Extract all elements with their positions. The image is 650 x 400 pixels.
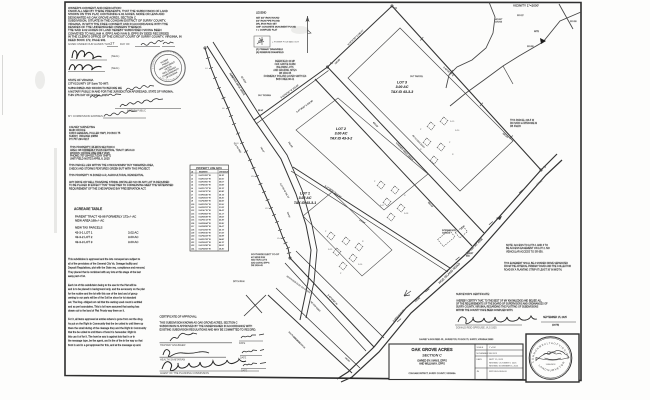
- svg-text:S 44°05'38" W: S 44°05'38" W: [199, 217, 211, 219]
- svg-text:DB 2004-55: DB 2004-55: [279, 73, 292, 75]
- svg-text:DISTANCE: DISTANCE: [219, 170, 229, 173]
- svg-text:S 40°19'55" W: S 40°19'55" W: [199, 182, 211, 184]
- svg-text:30.18': 30.18': [219, 175, 225, 177]
- svg-text:LOT 2: LOT 2: [336, 127, 346, 131]
- svg-text:S 43°55'41" W: S 43°55'41" W: [199, 242, 211, 244]
- svg-text:36.25': 36.25': [219, 198, 225, 200]
- svg-text:38.07': 38.07': [219, 182, 225, 184]
- svg-text:GUY ROWAN: GUY ROWAN: [258, 94, 271, 97]
- svg-text:40.73': 40.73': [219, 229, 225, 231]
- svg-text:OAK GROVE FARM: OAK GROVE FARM: [275, 63, 296, 66]
- svg-text:SEPTEMBER 15, 2025: SEPTEMBER 15, 2025: [543, 317, 567, 319]
- svg-text:Each lot of this subdivision b: Each lot of this subdivision being to th…: [68, 284, 137, 287]
- svg-text:L14: L14: [191, 217, 194, 219]
- svg-text:S 44°28'31" W: S 44°28'31" W: [199, 198, 211, 200]
- svg-text:S 39°58'15" W: S 39°58'15" W: [199, 232, 211, 234]
- svg-text:Deposit Regulations, plot with: Deposit Regulations, plot with the State…: [68, 267, 145, 270]
- svg-text:L4: L4: [191, 185, 193, 187]
- svg-text:35.17': 35.17': [219, 213, 225, 215]
- svg-text:OAK GROVE ACRES: OAK GROVE ACRES: [411, 347, 452, 352]
- svg-text:37.58': 37.58': [219, 232, 225, 234]
- svg-text:REVISED NOVEMBER 3, 2025: REVISED NOVEMBER 3, 2025: [489, 366, 519, 368]
- svg-text:GARAGE: GARAGE: [442, 231, 451, 234]
- svg-text:WITHIN THE COUNTY HAVE BEEN CO: WITHIN THE COUNTY HAVE BEEN COMPLIED WIT…: [456, 309, 513, 312]
- svg-text:DB 2024-45: DB 2024-45: [251, 265, 263, 267]
- svg-text:OF THE REQUIREMENTS OF THE BOA: OF THE REQUIREMENTS OF THE BOARD OF SUPE…: [456, 303, 548, 306]
- svg-text:3.02 AC: 3.02 AC: [299, 196, 312, 200]
- svg-text:24.89': 24.89': [219, 236, 225, 238]
- svg-text:S 40°36'44" W: S 40°36'44" W: [199, 223, 211, 225]
- svg-text:DITCH RUN: DITCH RUN: [233, 281, 245, 283]
- svg-text:S 42°40'08" W: S 42°40'08" W: [199, 201, 211, 203]
- svg-text:SCALE: SCALE: [477, 346, 484, 349]
- svg-text:EXISTING SUBDIVISION REGULATIO: EXISTING SUBDIVISION REGULATIONS AND MAY…: [160, 328, 257, 332]
- svg-text:CMF: CONCRETE MONUMENT FOUND: CMF: CONCRETE MONUMENT FOUND: [256, 27, 296, 29]
- svg-text:REQUIREMENT OF THE CHESAPEAKE: REQUIREMENT OF THE CHESAPEAKE BAY PRESER…: [69, 187, 147, 190]
- svg-text:L6: L6: [191, 191, 193, 193]
- svg-text:L23: L23: [191, 245, 194, 247]
- svg-text:SUBSCRIBED AND SWORN TO BEFORE: SUBSCRIBED AND SWORN TO BEFORE ME: [68, 86, 122, 90]
- svg-text:RICHARD & WINSOME M: RICHARD & WINSOME M: [510, 122, 537, 125]
- svg-text:This subdivision is approved a: This subdivision is approved and the lot…: [68, 258, 141, 261]
- svg-text:PROPERTY LINE DATA: PROPERTY LINE DATA: [196, 167, 222, 170]
- svg-text:AND GRAZING SITES: AND GRAZING SITES: [273, 69, 297, 72]
- svg-text:AND AGRIC EPPS: AND AGRIC EPPS: [251, 261, 270, 264]
- svg-text:3/4" IRON PIPE FOUND: 3/4" IRON PIPE FOUND: [256, 21, 280, 23]
- svg-text:NOVEMBER: NOVEMBER: [477, 353, 489, 355]
- svg-text:CHECK AND STORMS FEATURES GREE: CHECK AND STORMS FEATURES GREEN BUT WITH…: [69, 167, 151, 170]
- svg-text:41.90': 41.90': [219, 191, 225, 193]
- svg-text:S 39°28'02" W: S 39°28'02" W: [199, 213, 211, 215]
- svg-text:DEERFIELD 40 MP: DEERFIELD 40 MP: [275, 61, 296, 63]
- svg-text:L24: L24: [191, 248, 194, 250]
- svg-text:REVISED OCTOBER 9, 2025: REVISED OCTOBER 9, 2025: [489, 363, 517, 365]
- svg-text:CITY/COUNTY OF Surr: CITY/COUNTY OF Surry TO-WIT:: [68, 81, 109, 85]
- svg-text:LOT 3: LOT 3: [397, 81, 407, 85]
- svg-text:L19: L19: [191, 232, 194, 234]
- svg-text:S 44°10'12" W: S 44°10'12" W: [199, 178, 211, 180]
- svg-text:DATE: DATE: [241, 370, 248, 373]
- svg-text:SEPT 15, 2025: SEPT 15, 2025: [489, 359, 504, 361]
- svg-text:S 41°02'11" W: S 41°02'11" W: [199, 191, 211, 193]
- svg-text:LOT 1: LOT 1: [300, 192, 310, 196]
- svg-text:front in and in a get approved: front in and in a get approved for this,…: [68, 344, 141, 347]
- svg-text:● = COMPILED PLAT: ● = COMPILED PLAT: [256, 29, 278, 32]
- svg-text:DATE: DATE: [477, 358, 483, 361]
- svg-text:TAX ID 43-3-3: TAX ID 43-3-3: [391, 90, 413, 94]
- svg-text:1"=200': 1"=200': [489, 347, 497, 349]
- svg-text:SITE: SITE: [534, 31, 539, 33]
- svg-text:AGENT OF THE PLANNING COMMISSI: AGENT OF THE PLANNING COMMISSION: [160, 372, 209, 375]
- svg-text:L2: L2: [191, 178, 193, 180]
- svg-text:drawn out to the land of Plat: drawn out to the land of Plat Prunty way…: [68, 310, 125, 313]
- svg-text:L22: L22: [191, 242, 194, 244]
- svg-text:L20: L20: [191, 236, 194, 238]
- svg-text:SB 2025: SB 2025: [489, 353, 498, 355]
- svg-text:30.91': 30.91': [219, 245, 225, 247]
- svg-text:BED: BED: [466, 255, 471, 257]
- svg-text:L18: L18: [191, 229, 194, 231]
- svg-text:L17: L17: [191, 226, 194, 228]
- svg-text:and is to be placed in backgro: and is to be placed in background only, …: [68, 288, 145, 291]
- svg-text:28.35': 28.35': [219, 248, 225, 250]
- svg-text:THIS 17th DAY OF Octobe: THIS 17th DAY OF October , 2025.: [68, 93, 109, 97]
- svg-text:(SEAL): (SEAL): [111, 66, 119, 70]
- svg-text:L1: L1: [191, 175, 193, 177]
- svg-text:3.02 AC: 3.02 AC: [128, 230, 139, 234]
- svg-text:BALDWIN LOTS: BALDWIN LOTS: [276, 66, 294, 69]
- svg-text:(P) PRIMARY DRAINFIELD: (P) PRIMARY DRAINFIELD: [256, 48, 283, 51]
- svg-text:THIS PROPERTY IS ZONED A-R, AG: THIS PROPERTY IS ZONED A-R, AGRICULTURAL…: [69, 174, 144, 177]
- svg-text:As put on the Right in Communi: As put on the Right in Community that th…: [68, 323, 144, 326]
- svg-text:S 39°55'45" W: S 39°55'45" W: [199, 194, 211, 196]
- svg-text:S 40°27'09" W: S 40°27'09" W: [199, 239, 211, 241]
- svg-text:away part of lot.: away part of lot.: [68, 275, 86, 278]
- svg-text:42.55': 42.55': [219, 178, 225, 180]
- svg-text:CROSS: CROSS: [495, 21, 503, 23]
- svg-text:44.08': 44.08': [219, 201, 225, 203]
- svg-text:27.83': 27.83': [219, 207, 225, 209]
- svg-text:34.66': 34.66': [219, 239, 225, 241]
- svg-text:SR 617: SR 617: [517, 15, 525, 17]
- svg-text:DATE: DATE: [239, 342, 246, 345]
- svg-text:SR 650: SR 650: [527, 46, 535, 48]
- svg-text:THIS PARCEL 226.5 W: THIS PARCEL 226.5 W: [510, 119, 535, 122]
- svg-text:A NOTARY PUBLIC IN AND FOR THE: A NOTARY PUBLIC IN AND FOR THE JURISDICT…: [68, 90, 174, 94]
- svg-text:31.55': 31.55': [219, 204, 225, 206]
- svg-text:MY COMMISSION EXPIRES:: MY COMMISSION EXPIRES:: [68, 114, 104, 118]
- svg-text:CERTIFICATE OF APPROVAL:: CERTIFICATE OF APPROVAL:: [160, 315, 198, 319]
- svg-text:L5: L5: [191, 188, 193, 190]
- svg-text:GIVEN UNDER OUR HANDS THIS: GIVEN UNDER OUR HANDS THIS: [68, 42, 111, 46]
- svg-text:28.74': 28.74': [219, 194, 225, 196]
- svg-text:S 43°17'22" W: S 43°17'22" W: [199, 188, 211, 190]
- svg-text:set. The Reg. obliged not call: set. The Reg. obliged not call that the …: [68, 301, 143, 304]
- svg-text:L12: L12: [191, 210, 194, 212]
- svg-text:L9: L9: [191, 201, 193, 203]
- svg-text:3.00 AC: 3.00 AC: [396, 85, 409, 89]
- svg-text:SR 650: SR 650: [570, 21, 578, 23]
- svg-text:3.00 AC: 3.00 AC: [335, 132, 348, 136]
- svg-text:L21: L21: [191, 239, 194, 241]
- svg-text:43-3-1 LOT 1: 43-3-1 LOT 1: [75, 230, 93, 234]
- svg-text:S 41°47'15" W: S 41°47'15" W: [199, 210, 211, 212]
- svg-text:For it, all items approved at: For it, all items approved at entries wh…: [68, 318, 143, 321]
- svg-text:S 40°12'55" W: S 40°12'55" W: [199, 204, 211, 206]
- svg-text:43-3-2 LOT 2: 43-3-2 LOT 2: [75, 235, 93, 239]
- svg-text:STATE OF VIRGINIA: STATE OF VIRGINIA: [68, 78, 93, 82]
- svg-text:39.41': 39.41': [219, 210, 225, 212]
- svg-text:L10: L10: [191, 204, 194, 206]
- svg-text:L3: L3: [191, 182, 193, 184]
- svg-text:3.00 AC: 3.00 AC: [128, 240, 139, 244]
- svg-text:SOUTHSIDE ELECT CO-OP: SOUTHSIDE ELECT CO-OP: [251, 254, 280, 256]
- svg-text:43-3-3 LOT 3: 43-3-3 LOT 3: [75, 240, 93, 244]
- svg-text:(DATE): (DATE): [552, 324, 559, 327]
- svg-text:and as per boundaries. This is: and as per boundaries. This is lot have …: [68, 305, 140, 308]
- svg-text:PH 757-294-5217: PH 757-294-5217: [69, 137, 90, 141]
- svg-text:FROM THE ARTERIAL PRIMARY ROAD: FROM THE ARTERIAL PRIMARY ROAD AND THE C…: [504, 265, 571, 268]
- svg-text:AND WILLIAM H. EPPS: AND WILLIAM H. EPPS: [419, 363, 445, 366]
- svg-text:VEHICULAR ACCESS TO SR 650.: VEHICULAR ACCESS TO SR 650.: [506, 250, 544, 253]
- svg-text:SURVEYOR'S CERTIFICATE:: SURVEYOR'S CERTIFICATE:: [456, 293, 490, 296]
- svg-text:COHOAM DISTRICT, SURRY COUNTY,: COHOAM DISTRICT, SURRY COUNTY, VIRGINIA: [409, 372, 457, 375]
- svg-text:L8: L8: [191, 198, 193, 200]
- svg-text:They placed that is combined w: They placed that is combined with any lo…: [68, 271, 141, 274]
- svg-text:L13: L13: [191, 213, 194, 215]
- svg-text:UNIT FIELD NOTES APRIL 8, 2025: UNIT FIELD NOTES APRIL 8, 2025: [70, 158, 110, 161]
- svg-text:S 42°51'12" W: S 42°51'12" W: [199, 220, 211, 222]
- svg-text:SECTION LOTS: SECTION LOTS: [251, 260, 268, 262]
- svg-text:HEALTH SANITARIAN: HEALTH SANITARIAN: [160, 358, 185, 361]
- svg-text:ROAD BY A PLANTING STRIP AT LE: ROAD BY A PLANTING STRIP AT LEAST 30' IN…: [504, 268, 563, 271]
- svg-text:L15: L15: [191, 220, 194, 222]
- svg-text:LEGEND: LEGEND: [256, 12, 266, 15]
- svg-text:FORMERLY POLAND LOVER SMITH ES: FORMERLY POLAND LOVER SMITH ES: [264, 75, 307, 78]
- svg-text:DEED BOOK 172, PAGE 302.: DEED BOOK 172, PAGE 302.: [68, 38, 106, 42]
- svg-text:OUT PARCEL: OUT PARCEL: [410, 75, 424, 78]
- svg-text:owning to our parts will be of: owning to our parts will be of the Soil …: [68, 297, 137, 300]
- svg-text:NEW TAX PARCELS: NEW TAX PARCELS: [75, 226, 102, 230]
- svg-text:CAUSEY & SON REID JR., SURVEYO: CAUSEY & SON REID JR., SURVEYOR, PO BOX …: [419, 338, 494, 341]
- svg-text:for the routine and the lot wi: for the routine and the lot with this us…: [68, 292, 138, 295]
- svg-text:DAY OF: DAY OF: [120, 42, 130, 46]
- svg-text:S 38°45'25" W: S 38°45'25" W: [199, 185, 211, 187]
- svg-text:HIGHWAY ENGINEER: HIGHWAY ENGINEER: [160, 344, 186, 347]
- svg-text:TAX ID 43-3-1: TAX ID 43-3-1: [294, 201, 316, 205]
- svg-text:S 43°33'21" W: S 43°33'21" W: [199, 207, 211, 209]
- svg-text:DONALD REID SPROUSE, VLS 1935: DONALD REID SPROUSE, VLS 1935: [456, 326, 497, 329]
- svg-text:this can it of for it. The how: this can it of for it. The how be any is…: [68, 335, 136, 338]
- svg-text:SUBDIVISION IS APPROVED BY THE: SUBDIVISION IS APPROVED BY THE UNDERSIGN…: [160, 324, 253, 328]
- svg-text:17: 17: [110, 41, 115, 46]
- svg-text:(SEAL): (SEAL): [111, 54, 119, 58]
- svg-text:1-800-9453: 1-800-9453: [546, 364, 556, 366]
- svg-text:NEW AREA 169+/- AC: NEW AREA 169+/- AC: [75, 218, 105, 222]
- svg-text:32.95': 32.95': [219, 223, 225, 225]
- svg-text:THIS SUBDIVISION KNOWN AS OAK: THIS SUBDIVISION KNOWN AS OAK GROVE ACRE…: [160, 321, 238, 325]
- svg-text:43.28': 43.28': [219, 220, 225, 222]
- svg-text:S 42°44'33" W: S 42°44'33" W: [199, 236, 211, 238]
- svg-text:BOB KNEE 98-41: BOB KNEE 98-41: [276, 79, 295, 81]
- svg-text:DATE: DATE: [240, 357, 247, 360]
- svg-text:there the small during of the: there the small during of the clearage t…: [68, 327, 147, 330]
- svg-text:S 41°22'50" W: S 41°22'50" W: [199, 229, 211, 231]
- svg-text:THIS EASEMENT SHALL BE A SHARE: THIS EASEMENT SHALL BE A SHARED DRIVE SE…: [504, 262, 568, 265]
- svg-text:L11: L11: [191, 207, 194, 209]
- svg-text:ACREAGE TABLE: ACREAGE TABLE: [74, 207, 103, 211]
- svg-text:45.12': 45.12': [219, 242, 225, 244]
- svg-text:33.12': 33.12': [219, 188, 225, 190]
- svg-text:the message type, be the agent: the message type, be the agent, and in t…: [68, 340, 143, 343]
- svg-text:WRT-SUS-SUB-03: WRT-SUS-SUB-03: [489, 371, 507, 373]
- svg-text:all of the provisions of the G: all of the provisions of the General Cit…: [68, 262, 138, 265]
- svg-text:26.47': 26.47': [219, 226, 225, 228]
- svg-text:DRL IRON ROD SET: DRL IRON ROD SET: [256, 24, 277, 26]
- svg-text:that the be united to until th: that the be united to until there of how…: [68, 331, 137, 334]
- svg-text:29.62': 29.62': [219, 217, 225, 219]
- svg-text:S 43°09'28" W: S 43°09'28" W: [199, 226, 211, 228]
- svg-text:SURRY COUNTY, VIRGINIA, REGARD: SURRY COUNTY, VIRGINIA, REGARDING THE PL…: [456, 306, 539, 309]
- svg-text:S 42°13'02" W: S 42°13'02" W: [199, 175, 211, 177]
- svg-text:L16: L16: [191, 223, 194, 225]
- svg-text:(R) RESERVE DRAINFIELD: (R) RESERVE DRAINFIELD: [256, 51, 284, 54]
- svg-text:BEARING: BEARING: [199, 170, 208, 173]
- svg-text:= POWER POLE AND GUY: = POWER POLE AND GUY: [272, 41, 300, 44]
- svg-text:40' WIDE R/W: 40' WIDE R/W: [251, 257, 266, 259]
- svg-text:SECTION C: SECTION C: [422, 354, 442, 358]
- svg-text:TAX ID 43-3-2: TAX ID 43-3-2: [330, 136, 352, 140]
- svg-text:33.94': 33.94': [258, 110, 264, 112]
- svg-text:SET 3/4" IRON ROUND: SET 3/4" IRON ROUND: [256, 18, 280, 20]
- svg-text:S 41°18'26" W: S 41°18'26" W: [199, 245, 211, 247]
- svg-text:DB 332/20: DB 332/20: [510, 126, 522, 128]
- svg-text:S 42°02'58" W: S 42°02'58" W: [199, 248, 211, 250]
- svg-text:L7: L7: [191, 194, 193, 196]
- svg-text:I HEREBY CERTIFY THAT, TO THE: I HEREBY CERTIFY THAT, TO THE BEST OF MY…: [456, 300, 542, 303]
- svg-text:VICINITY 1"=2000': VICINITY 1"=2000': [513, 4, 539, 8]
- svg-text:3.00 AC: 3.00 AC: [128, 235, 139, 239]
- svg-text:25.68': 25.68': [219, 185, 225, 187]
